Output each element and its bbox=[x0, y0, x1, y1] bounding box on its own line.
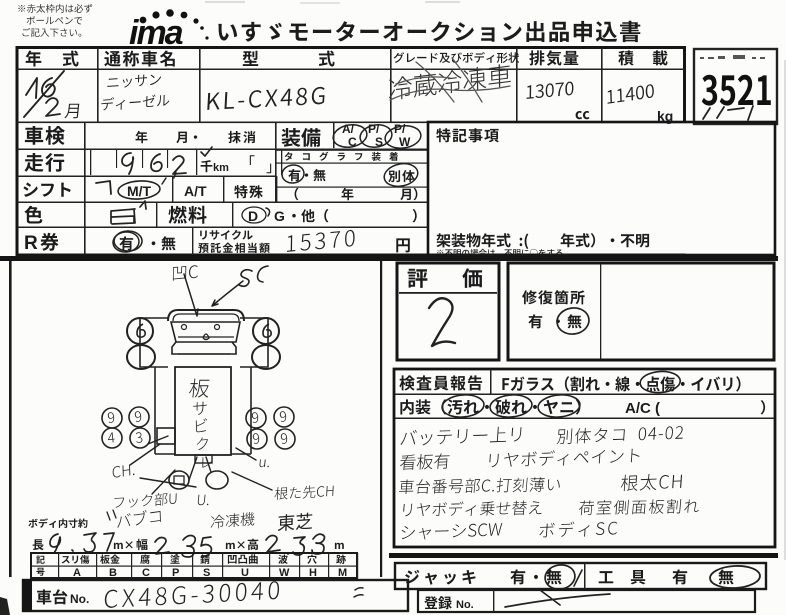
svg-text:U: U bbox=[241, 567, 249, 579]
svg-text:A/C (: A/C ( bbox=[625, 400, 660, 417]
svg-text:No.: No. bbox=[456, 599, 474, 611]
svg-text:C: C bbox=[142, 567, 150, 579]
svg-text:A/T: A/T bbox=[184, 183, 207, 199]
svg-text:No.: No. bbox=[70, 592, 89, 606]
svg-text:S: S bbox=[203, 567, 210, 579]
svg-text:A: A bbox=[73, 567, 81, 579]
svg-text:M: M bbox=[338, 567, 347, 579]
svg-text:G: G bbox=[274, 208, 285, 224]
svg-text:H: H bbox=[309, 567, 317, 579]
svg-text:R: R bbox=[24, 233, 38, 254]
svg-text:P: P bbox=[172, 567, 179, 579]
svg-text:B: B bbox=[109, 567, 117, 579]
svg-text:km: km bbox=[213, 162, 229, 174]
svg-text:P/: P/ bbox=[394, 122, 406, 136]
svg-text:D: D bbox=[248, 208, 258, 224]
svg-text:W: W bbox=[279, 567, 290, 579]
svg-text:M/T: M/T bbox=[127, 183, 152, 199]
